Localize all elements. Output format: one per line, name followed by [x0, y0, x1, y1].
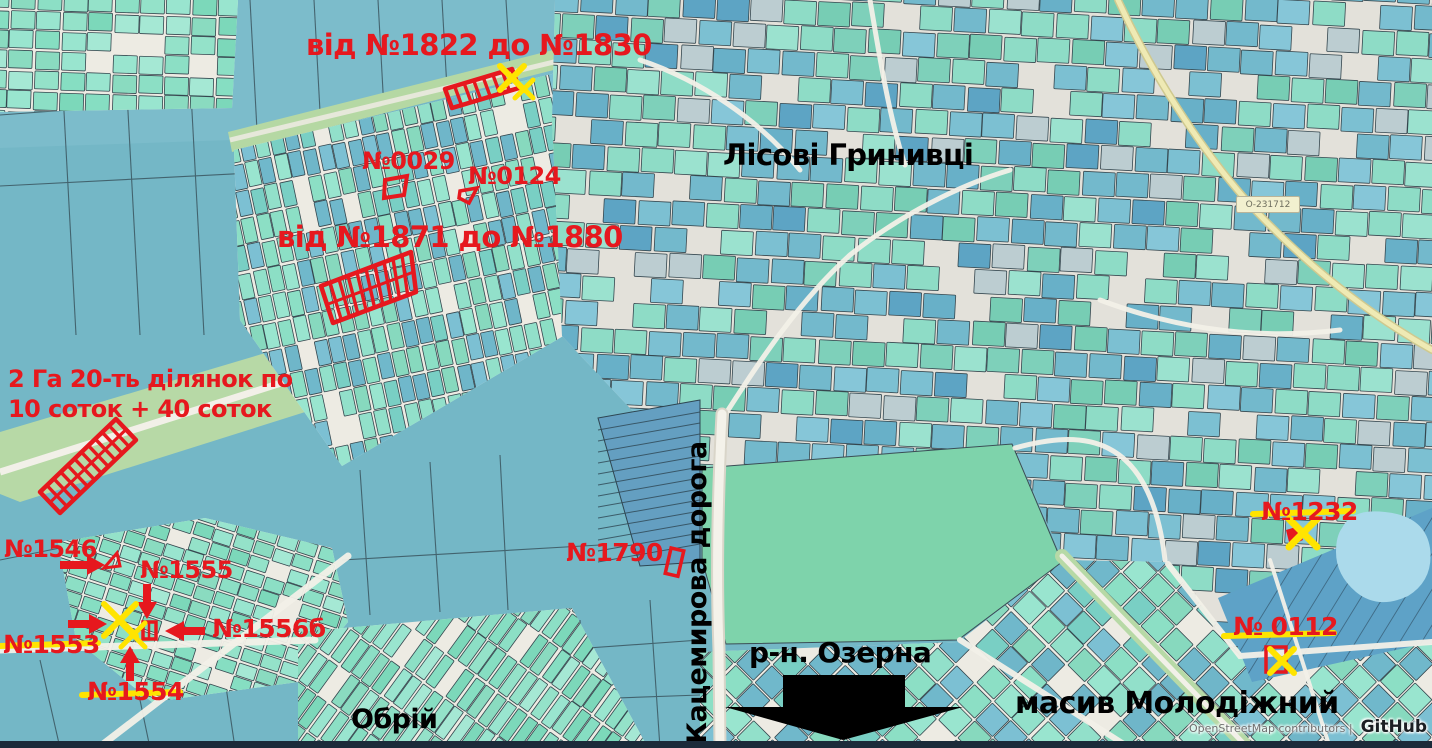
- annotation-plot-1232: №1232: [1261, 499, 1358, 524]
- annotation-range-1871-1880: від №1871 до №1880: [277, 223, 623, 252]
- annotation-plot-1556b: №1556б: [212, 616, 326, 641]
- annotation-area-2ha-line1: 2 Га 20-ть ділянок по: [8, 367, 292, 391]
- attribution: OpenStreetMap contributors | GitHub: [1189, 717, 1427, 737]
- annotation-plot-0124: №0124: [468, 164, 561, 188]
- bottom-bar: [0, 741, 1432, 748]
- annotation-plot-1553: №1553: [3, 632, 100, 657]
- annotation-plot-1546: №1546: [4, 537, 97, 561]
- place-label-road-vertical: Кацемирова дорога: [684, 441, 711, 744]
- road-shield: О-231712: [1236, 196, 1300, 213]
- place-label-obrii: Обрій: [351, 706, 437, 733]
- annotation-plot-0029: №0029: [362, 149, 455, 173]
- annotation-plot-0112: № 0112: [1233, 614, 1338, 639]
- osm-attribution-link[interactable]: OpenStreetMap contributors |: [1189, 722, 1353, 735]
- map-screenshot: від №1822 до №1830 №0029 №0124 від №1871…: [0, 0, 1432, 748]
- place-label-village: Лісові Гринивці: [723, 141, 973, 170]
- annotation-area-2ha-line2: 10 соток + 40 соток: [8, 397, 272, 421]
- annotation-plot-1555: №1555: [140, 558, 233, 582]
- github-logo[interactable]: GitHub: [1361, 717, 1427, 737]
- annotation-plot-1790: №1790: [566, 540, 663, 565]
- place-label-massif-molodizhnyi: масив Молодіжний: [1015, 689, 1339, 719]
- place-label-district-ozerna: р-н. Озерна: [749, 639, 931, 667]
- annotation-range-1822-1830: від №1822 до №1830: [306, 31, 652, 60]
- annotation-plot-1554: №1554: [87, 679, 184, 704]
